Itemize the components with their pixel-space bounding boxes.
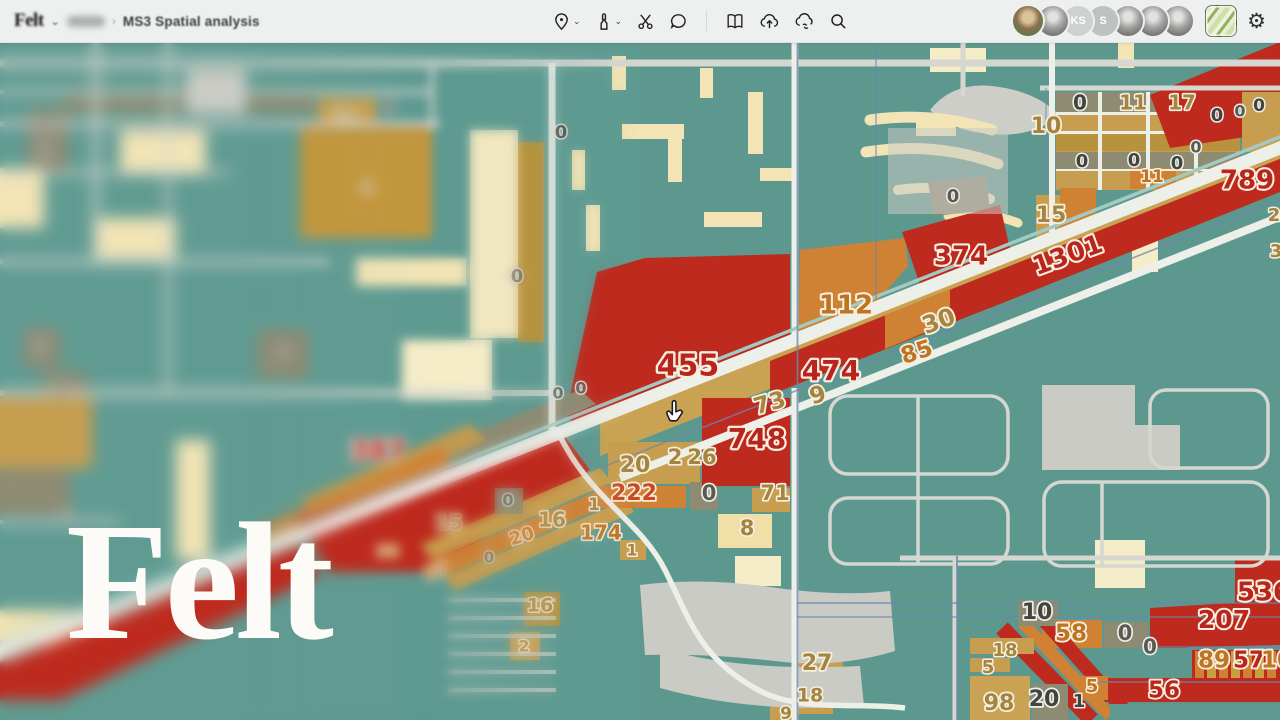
avatar[interactable] bbox=[1011, 4, 1045, 38]
parcel-label: 0 bbox=[502, 491, 513, 510]
parcel-label: 0 bbox=[1171, 153, 1184, 174]
parcel-label: 1 bbox=[1073, 691, 1086, 712]
parcel-label: 0 bbox=[511, 266, 524, 287]
parcel-label: 0 bbox=[702, 481, 717, 505]
parcel-label: 3 bbox=[1270, 241, 1280, 262]
felt-watermark: Felt bbox=[66, 498, 330, 666]
presence-and-settings: KSS ⚙ bbox=[1011, 0, 1266, 42]
parcel-label: 2 bbox=[668, 445, 683, 469]
parcel-label: 0 bbox=[1253, 96, 1265, 116]
parcel-label: 0 bbox=[1073, 91, 1087, 115]
parcel-label: 0 bbox=[1118, 621, 1133, 645]
parcel-label: 71 bbox=[760, 481, 789, 505]
breadcrumb-separator: › bbox=[112, 14, 116, 28]
parcel-label: 0 bbox=[39, 144, 49, 160]
parcel-label: 56 bbox=[1148, 678, 1180, 704]
parcel-label: 20 bbox=[620, 453, 651, 478]
parcel-label: 0 bbox=[575, 379, 586, 398]
parcel-label: 16 bbox=[538, 508, 566, 532]
parcel-label: 15 bbox=[435, 511, 463, 535]
parcel-label: 748 bbox=[728, 422, 786, 455]
parcel-label: 14 bbox=[333, 106, 357, 126]
parcel-label: 374 bbox=[934, 242, 988, 272]
parcel-label: 9 bbox=[780, 704, 792, 720]
settings-gear-icon[interactable]: ⚙ bbox=[1247, 11, 1266, 32]
tool-group: ⌄ ⌄ bbox=[552, 0, 848, 42]
cloud-link-tool[interactable] bbox=[794, 12, 815, 31]
parcel-label: 207 bbox=[1198, 605, 1250, 634]
parcel-label: 0 bbox=[1076, 151, 1089, 172]
parcel-label: 1 bbox=[626, 541, 637, 560]
parcel-label: 2 bbox=[518, 637, 529, 656]
parcel-label: 112 bbox=[819, 291, 873, 321]
parcel-label: 455 bbox=[657, 349, 720, 384]
parcel-label: 8 bbox=[740, 516, 755, 540]
top-toolbar: Felt ⌄ › MS3 Spatial analysis ⌄ ⌄ bbox=[0, 0, 1280, 43]
map-thumbnail-button[interactable] bbox=[1205, 5, 1237, 37]
annotation-marker-tool[interactable]: ⌄ bbox=[595, 12, 623, 31]
cut-tool[interactable] bbox=[636, 12, 655, 31]
felt-app-window: 0000014048000455474748387739853011237413… bbox=[0, 0, 1280, 720]
parcel-label: 174 bbox=[580, 521, 622, 545]
parcel-label: 10 bbox=[1261, 648, 1280, 674]
parcel-label: 18 bbox=[992, 640, 1017, 661]
pages-tool[interactable] bbox=[725, 12, 745, 31]
search-tool[interactable] bbox=[829, 12, 848, 31]
parcel-label: 1 bbox=[588, 495, 600, 515]
parcel-label: 5 bbox=[1086, 676, 1099, 697]
parcel-label: 0 bbox=[552, 384, 563, 403]
parcel-label: 16 bbox=[527, 595, 553, 617]
parcel-label: 27 bbox=[802, 651, 833, 676]
parcel-label: 0 bbox=[947, 186, 960, 207]
parcel-label: 58 bbox=[1055, 621, 1087, 647]
parcel-label: 4 bbox=[360, 177, 373, 199]
workspace-chevron-icon[interactable]: ⌄ bbox=[51, 15, 60, 28]
parcel-label: 0 bbox=[1190, 138, 1201, 157]
parcel-label: 26 bbox=[687, 445, 716, 469]
parcel-label: 15 bbox=[1036, 203, 1067, 228]
parcel-label: 20 bbox=[1029, 687, 1060, 712]
chevron-down-icon[interactable]: ⌄ bbox=[615, 16, 623, 27]
parcel-label: 0 bbox=[1143, 635, 1157, 659]
parcel-label: 0 bbox=[35, 338, 45, 356]
parcel-label: 18 bbox=[797, 685, 823, 707]
toolbar-divider bbox=[706, 11, 707, 31]
chevron-down-icon[interactable]: ⌄ bbox=[573, 16, 581, 27]
parcel-label: 0 bbox=[1234, 102, 1245, 121]
parcel-label: 0 bbox=[1128, 150, 1141, 171]
parcel-label: 0 bbox=[57, 381, 67, 399]
map-title[interactable]: MS3 Spatial analysis bbox=[123, 14, 260, 29]
parcel-label: 89 bbox=[1198, 648, 1230, 674]
parcel-label: 0 bbox=[555, 122, 568, 143]
parcel-label: 222 bbox=[611, 481, 657, 506]
comment-tool[interactable] bbox=[669, 12, 688, 31]
parcel-label: 30 bbox=[377, 542, 399, 561]
parcel-label: 8 bbox=[277, 343, 289, 363]
parcel-label: 0 bbox=[484, 549, 494, 567]
parcel-label: 11 bbox=[1140, 167, 1164, 187]
location-pin-tool[interactable]: ⌄ bbox=[552, 12, 581, 31]
parcel-label: 474 bbox=[802, 354, 860, 387]
parcel-label: 11 bbox=[1119, 91, 1147, 115]
parcel-label: 5 bbox=[982, 657, 995, 678]
parcel-label: 0 bbox=[1211, 105, 1224, 126]
parcel-label: 98 bbox=[984, 691, 1015, 716]
parcel-label: 387 bbox=[350, 436, 406, 467]
workspace-name-redacted[interactable] bbox=[67, 16, 105, 27]
breadcrumb: Felt ⌄ › MS3 Spatial analysis bbox=[0, 10, 260, 32]
presence-avatars[interactable]: KSS bbox=[1011, 4, 1195, 38]
felt-logo[interactable]: Felt bbox=[14, 10, 44, 32]
parcel-label: 789 bbox=[1220, 166, 1274, 196]
parcel-label: 10 bbox=[1031, 114, 1062, 139]
parcel-label: 10 bbox=[1022, 600, 1053, 625]
parcel-label: 0 bbox=[42, 119, 52, 137]
parcel-label: 17 bbox=[1168, 91, 1196, 115]
parcel-label: 2 bbox=[1268, 205, 1280, 226]
upload-cloud-tool[interactable] bbox=[759, 12, 780, 31]
parcel-label: 536 bbox=[1237, 578, 1280, 608]
hand-cursor-icon bbox=[663, 400, 685, 431]
parcel-label: 0 bbox=[383, 97, 394, 116]
